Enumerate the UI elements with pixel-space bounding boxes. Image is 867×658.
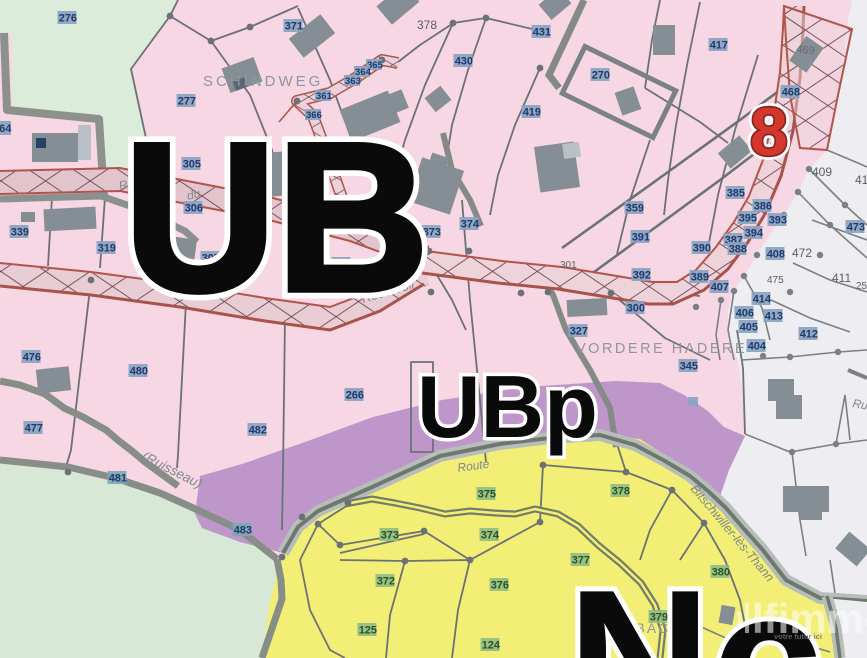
svg-text:276: 276 (59, 13, 77, 25)
svg-text:419: 419 (523, 107, 541, 119)
svg-text:364: 364 (0, 123, 12, 135)
svg-text:472: 472 (792, 246, 812, 260)
svg-text:VORDERE HADERE: VORDERE HADERE (576, 341, 747, 357)
svg-text:405: 405 (740, 322, 758, 334)
svg-text:301: 301 (560, 260, 577, 271)
svg-text:476: 476 (23, 352, 41, 364)
svg-text:373: 373 (381, 530, 399, 542)
svg-text:372: 372 (377, 576, 395, 588)
svg-text:374: 374 (461, 219, 480, 231)
svg-text:390: 390 (693, 243, 711, 255)
svg-text:270: 270 (592, 70, 610, 82)
svg-text:374: 374 (481, 530, 500, 542)
svg-text:8: 8 (750, 94, 788, 170)
svg-text:389: 389 (691, 272, 709, 284)
svg-text:339: 339 (11, 227, 29, 239)
svg-text:376: 376 (491, 580, 509, 592)
svg-text:votre futur ici: votre futur ici (774, 632, 822, 641)
svg-text:378: 378 (417, 18, 437, 32)
svg-text:417: 417 (710, 40, 728, 52)
svg-text:124: 124 (482, 640, 501, 652)
svg-text:375: 375 (478, 489, 496, 501)
svg-text:473: 473 (847, 222, 865, 234)
svg-text:388: 388 (729, 244, 747, 256)
svg-text:Ru: Ru (851, 396, 867, 413)
svg-text:412: 412 (800, 329, 818, 341)
svg-text:392: 392 (633, 270, 651, 282)
svg-text:469: 469 (796, 43, 816, 57)
svg-text:SCHINDWEG: SCHINDWEG (203, 73, 323, 90)
svg-text:327: 327 (570, 326, 588, 338)
svg-text:483: 483 (234, 525, 252, 537)
svg-text:406: 406 (736, 308, 754, 320)
svg-text:407: 407 (711, 282, 729, 294)
svg-text:385: 385 (727, 188, 745, 200)
svg-text:431: 431 (533, 27, 551, 39)
svg-text:394: 394 (745, 228, 764, 240)
svg-text:482: 482 (249, 425, 267, 437)
svg-text:481: 481 (109, 473, 127, 485)
svg-text:411: 411 (832, 271, 851, 285)
svg-text:395: 395 (739, 213, 757, 225)
svg-text:386: 386 (754, 201, 772, 213)
svg-text:393: 393 (769, 215, 787, 227)
svg-text:430: 430 (455, 56, 473, 68)
svg-text:413: 413 (765, 311, 783, 323)
svg-text:363: 363 (345, 76, 361, 87)
svg-text:391: 391 (632, 232, 650, 244)
svg-text:414: 414 (753, 294, 772, 306)
svg-text:477: 477 (25, 423, 43, 435)
svg-text:319: 319 (98, 243, 116, 255)
svg-text:266: 266 (346, 390, 364, 402)
svg-text:475: 475 (767, 275, 784, 286)
svg-text:409: 409 (812, 165, 832, 179)
svg-text:480: 480 (130, 366, 148, 378)
svg-text:410: 410 (855, 173, 867, 187)
svg-text:300: 300 (627, 303, 645, 315)
svg-text:404: 404 (748, 341, 767, 353)
svg-text:UBp: UBp (417, 357, 598, 456)
svg-text:359: 359 (626, 203, 644, 215)
svg-text:UB: UB (124, 99, 429, 335)
svg-text:25: 25 (856, 281, 867, 292)
svg-text:378: 378 (612, 486, 630, 498)
svg-text:345: 345 (680, 361, 698, 373)
svg-text:125: 125 (359, 625, 377, 637)
svg-text:371: 371 (285, 21, 303, 33)
svg-text:408: 408 (767, 249, 785, 261)
